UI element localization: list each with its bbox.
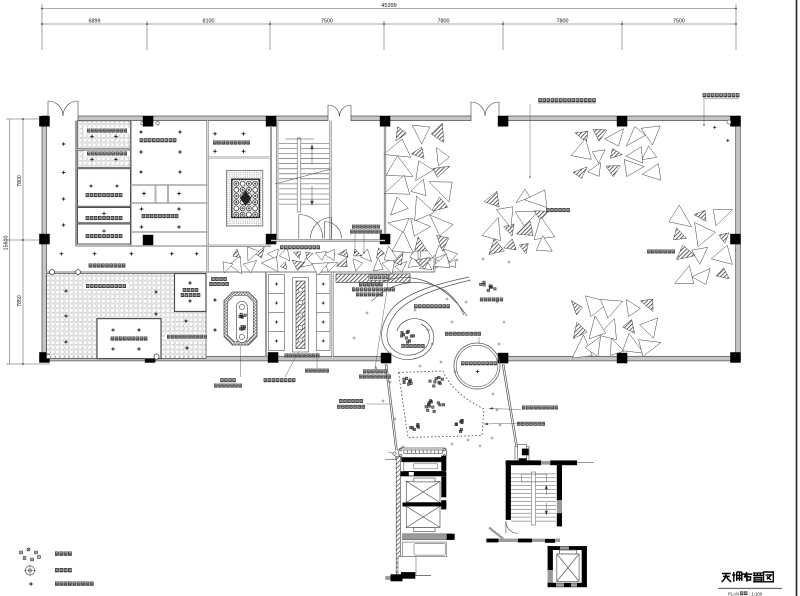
- svg-text:6899: 6899: [89, 18, 101, 24]
- svg-text:7500: 7500: [673, 18, 685, 24]
- svg-text:8100: 8100: [203, 18, 215, 24]
- svg-text:45399: 45399: [381, 3, 397, 9]
- svg-text:7850: 7850: [17, 295, 23, 307]
- svg-text:7800: 7800: [438, 18, 450, 24]
- svg-text:7800: 7800: [557, 18, 569, 24]
- svg-text:7500: 7500: [321, 18, 333, 24]
- svg-text:15600: 15600: [4, 236, 10, 251]
- svg-text:PLAN: PLAN: [728, 591, 739, 596]
- svg-text:7800: 7800: [17, 175, 23, 187]
- svg-text:: 1:100: : 1:100: [749, 591, 763, 596]
